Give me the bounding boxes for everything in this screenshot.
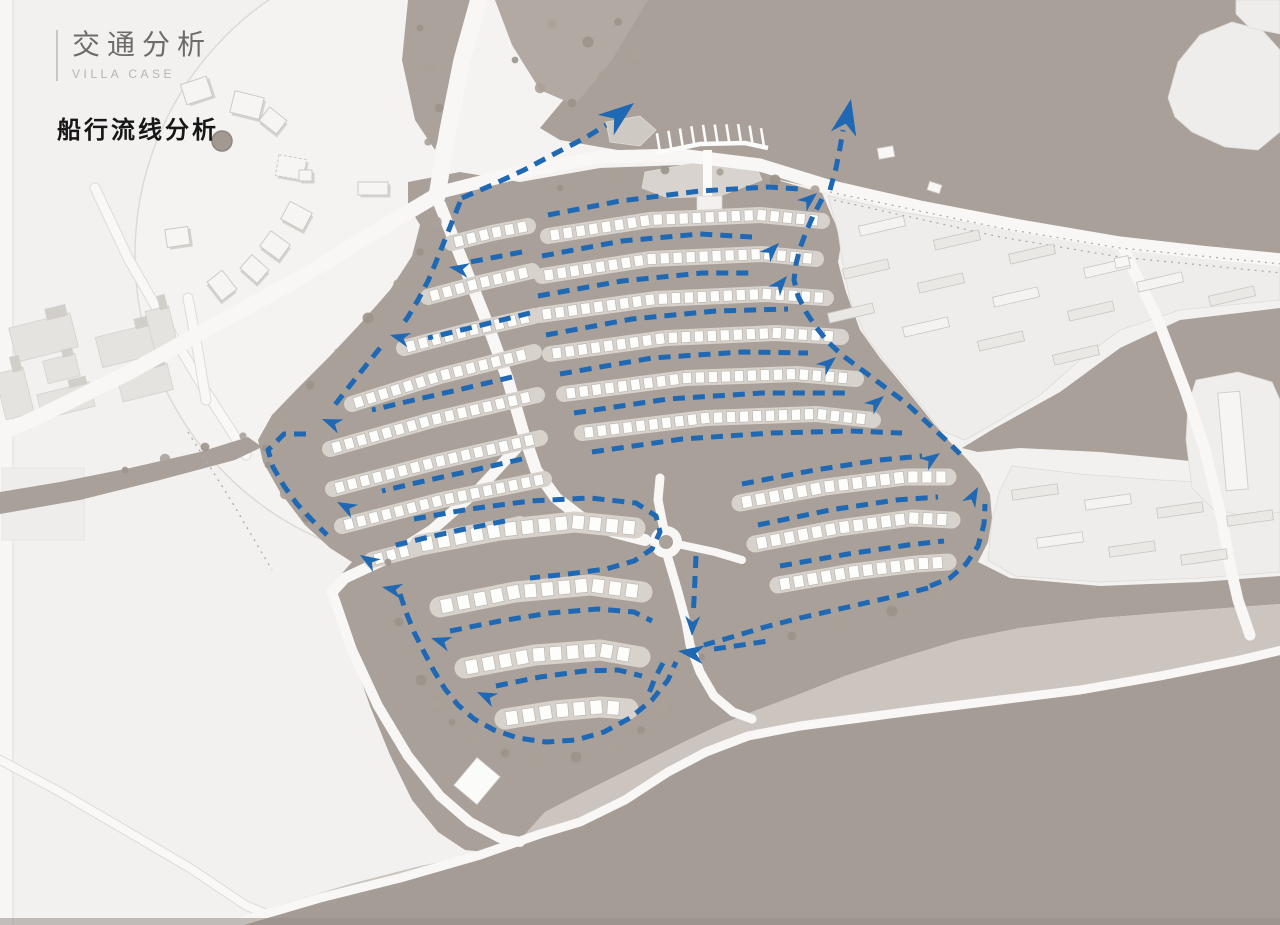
image-bottom-strip [0, 918, 1280, 925]
villa-unit [904, 558, 915, 571]
villa-unit [532, 647, 545, 662]
villa-unit [725, 250, 734, 261]
villa-unit [591, 578, 605, 593]
tree [334, 348, 341, 355]
tree [393, 279, 402, 288]
villa-unit [572, 515, 585, 530]
tree [637, 726, 645, 734]
villa-unit [731, 210, 740, 221]
villa-unit [566, 645, 579, 660]
villa-unit [473, 446, 484, 459]
villa-unit [482, 484, 493, 497]
villa-unit [625, 583, 639, 598]
title-divider-bar [56, 30, 58, 81]
villa-unit [584, 426, 594, 438]
villa-unit [590, 342, 600, 354]
villa-unit [734, 370, 743, 381]
tree [306, 381, 315, 390]
traffic-analysis-page: 交通分析 VILLA CASE 船行流线分析 [0, 0, 1280, 925]
villa-unit [627, 217, 638, 229]
tree [571, 752, 582, 763]
villa-unit [733, 329, 742, 340]
villa-unit [673, 252, 682, 263]
villa-unit [465, 659, 479, 675]
villa-unit [481, 656, 495, 672]
villa-unit [549, 646, 562, 661]
villa-unit [504, 223, 515, 236]
villa-unit [666, 213, 675, 224]
villa-unit [757, 209, 767, 221]
villa-unit [606, 299, 616, 311]
villa-unit [679, 213, 688, 224]
villa-unit [838, 372, 848, 384]
villa-unit [747, 370, 756, 381]
tree [535, 83, 545, 93]
villa-unit [694, 331, 703, 342]
villa-unit [736, 289, 745, 300]
villa-unit [785, 328, 795, 340]
villa-unit [838, 478, 849, 491]
tree [557, 185, 564, 192]
villa-unit [712, 250, 721, 261]
villa-unit [726, 411, 735, 422]
tree [122, 467, 129, 474]
tree [606, 742, 615, 751]
villa-unit [668, 332, 677, 343]
villa-unit [616, 338, 626, 350]
villa-unit [490, 588, 505, 604]
villa-unit [744, 210, 753, 221]
villa-unit [632, 296, 642, 308]
villa-unit [460, 449, 471, 462]
villa-unit [713, 412, 722, 423]
villa-unit [605, 518, 618, 533]
villa-unit [760, 369, 769, 380]
villa-unit [582, 263, 593, 275]
villa-unit [575, 225, 586, 237]
villa-unit [756, 536, 768, 550]
villa-unit [699, 251, 708, 262]
villa-unit [655, 333, 665, 345]
villa-unit [555, 516, 568, 531]
villa-unit [569, 265, 580, 277]
boat-route-connector-vertical [693, 556, 696, 616]
villa-unit [517, 221, 528, 234]
villa-unit [782, 212, 792, 224]
villa-unit [684, 292, 693, 303]
villa-unit [770, 210, 780, 222]
villa-unit [856, 413, 866, 425]
villa-unit [640, 215, 651, 227]
tree [699, 654, 706, 661]
villa-unit [848, 565, 859, 578]
villa-unit [457, 490, 468, 503]
villa-unit [520, 476, 531, 489]
villa-unit [777, 250, 787, 262]
tree [887, 606, 898, 617]
villa-unit [741, 495, 753, 509]
tree [598, 71, 605, 78]
villa-unit [456, 594, 471, 610]
villa-unit [544, 269, 555, 281]
tree [324, 536, 331, 543]
villa-unit [614, 219, 625, 231]
villa-unit [710, 291, 719, 302]
villa-unit [918, 557, 929, 570]
villa-unit [505, 270, 516, 283]
villa-unit [692, 212, 701, 223]
tree [239, 432, 246, 439]
tree [417, 25, 424, 32]
tree [426, 63, 436, 73]
villa-unit [810, 482, 822, 496]
villa-unit [447, 452, 458, 465]
villa-unit [590, 700, 603, 715]
villa-unit [798, 329, 808, 341]
villa-unit [563, 227, 574, 239]
villa-unit [604, 382, 614, 394]
villa-unit [814, 292, 824, 304]
villa-unit [799, 369, 809, 381]
villa-unit [786, 369, 795, 380]
villa-unit [909, 512, 920, 524]
villa-unit [658, 293, 667, 304]
villa-unit [580, 303, 590, 315]
villa-unit [648, 418, 658, 430]
villa-unit [695, 372, 704, 383]
villa-unit [721, 371, 730, 382]
tree [435, 104, 444, 113]
tree [605, 171, 615, 181]
tree [363, 313, 374, 324]
villa-unit [588, 223, 599, 235]
villa-unit [908, 471, 918, 483]
villa-unit [773, 369, 782, 380]
villa-unit [444, 492, 455, 505]
villa-unit [542, 308, 552, 320]
villa-unit [621, 257, 632, 269]
villa-unit [599, 643, 613, 659]
villa-unit [697, 291, 706, 302]
villa-unit [522, 707, 536, 723]
villa-unit [473, 591, 488, 607]
villa-unit [608, 259, 619, 271]
villa-unit [772, 327, 782, 339]
villa-unit [629, 336, 639, 348]
villa-unit [812, 370, 822, 382]
villa-unit [642, 335, 652, 347]
villa-unit [558, 580, 571, 595]
tree [265, 462, 272, 469]
tree [657, 702, 669, 714]
villa-unit [890, 560, 901, 573]
villa-unit [577, 343, 587, 355]
villa-unit [653, 214, 662, 225]
villa-unit [498, 440, 509, 453]
villa-unit [749, 289, 758, 300]
tree [449, 719, 456, 726]
villa-unit [645, 294, 655, 306]
villa-unit [866, 517, 878, 530]
villa-unit [566, 387, 576, 399]
tree [385, 559, 392, 566]
tree [568, 99, 577, 108]
tree [536, 755, 543, 762]
title-block: 交通分析 VILLA CASE [56, 30, 212, 81]
villa-unit [552, 347, 562, 359]
villa-unit [779, 577, 791, 591]
villa-unit [830, 410, 840, 422]
tree [770, 175, 781, 186]
villa-unit [595, 261, 606, 273]
tree [614, 18, 622, 26]
tree [395, 618, 404, 627]
tree [431, 699, 440, 708]
tree [838, 619, 845, 626]
villa-unit [616, 646, 630, 662]
villa-unit [720, 330, 729, 341]
villa-unit [795, 213, 805, 225]
villa-unit [853, 519, 865, 532]
villa-unit [817, 409, 827, 421]
villa-unit [593, 301, 603, 313]
villa-unit [852, 476, 863, 489]
villa-unit [768, 490, 780, 504]
villa-unit [634, 255, 645, 267]
tree [629, 49, 641, 61]
villa-unit [643, 377, 653, 389]
villa-unit [937, 513, 948, 525]
villa-unit [879, 473, 890, 486]
tree [424, 138, 431, 145]
villa-unit [820, 570, 832, 584]
villa-unit [485, 443, 496, 456]
villa-unit [601, 221, 612, 233]
villa-unit [583, 643, 596, 658]
villa-unit [746, 328, 755, 339]
tree [661, 166, 670, 175]
waterfront-house [877, 146, 895, 160]
villa-unit [700, 412, 710, 424]
page-subtitle: VILLA CASE [72, 67, 212, 81]
villa-unit [669, 374, 679, 386]
villa-unit [778, 410, 787, 421]
villa-unit [504, 521, 517, 536]
villa-unit [839, 520, 851, 533]
section-title: 船行流线分析 [57, 110, 219, 145]
villa-unit [521, 520, 534, 535]
villa-unit [619, 297, 629, 309]
villa-unit [550, 229, 561, 241]
villa-unit [515, 649, 529, 665]
villa-unit [751, 249, 760, 260]
villa-unit [541, 581, 554, 596]
villa-unit [533, 474, 544, 487]
villa-unit [762, 288, 772, 300]
villa-unit [597, 425, 607, 437]
villa-unit [824, 480, 835, 493]
villa-unit [524, 583, 537, 598]
villa-unit [804, 409, 813, 420]
villa-unit [506, 584, 521, 600]
villa-unit [608, 581, 622, 596]
villa-unit [876, 562, 887, 575]
villa-unit [797, 528, 809, 542]
villa-unit [511, 437, 522, 450]
villa-unit [707, 330, 716, 341]
villa-unit [723, 290, 732, 301]
tree [788, 632, 797, 641]
villa-unit [517, 267, 528, 280]
villa-unit [893, 471, 904, 484]
villa-unit [708, 371, 717, 382]
villa-unit [498, 653, 512, 669]
villa-unit [661, 417, 671, 429]
villa-unit [705, 212, 714, 223]
villa-unit [603, 340, 613, 352]
roundabout-center [659, 535, 673, 549]
villa-unit [495, 482, 506, 495]
tree [810, 185, 819, 194]
tree [160, 454, 170, 464]
tree [932, 592, 941, 601]
villa-unit [556, 703, 569, 718]
villa-unit [491, 226, 502, 239]
tree [278, 413, 288, 423]
villa-unit [782, 487, 794, 501]
villa-unit [538, 518, 551, 533]
tree [501, 749, 510, 758]
villa-unit [575, 578, 588, 593]
villa-unit [622, 520, 635, 535]
tree [430, 216, 442, 228]
villa-unit [865, 475, 876, 488]
tree [583, 37, 594, 48]
villa-unit [623, 421, 633, 433]
villa-unit [770, 533, 782, 547]
villa-unit [783, 531, 795, 545]
villa-unit [765, 410, 774, 421]
villa-unit [592, 384, 602, 396]
villa-unit [647, 253, 656, 264]
tree [512, 57, 519, 64]
villa-unit [555, 306, 565, 318]
tree [471, 736, 481, 746]
villa-unit [588, 516, 601, 531]
villa-unit [660, 253, 669, 264]
villa-unit [932, 556, 943, 569]
tree [547, 19, 556, 28]
villa-unit [479, 275, 490, 288]
page-edge-strip [0, 0, 13, 925]
villa-unit [579, 385, 589, 397]
villa-unit [759, 328, 768, 339]
villa-unit [492, 273, 503, 286]
villa-unit [505, 710, 519, 726]
villa-unit [807, 572, 819, 586]
villa-unit [718, 211, 727, 222]
plaza-building [358, 182, 388, 195]
villa-unit [435, 455, 446, 468]
villa-unit [922, 471, 932, 483]
villa-unit [802, 252, 812, 264]
villa-unit [674, 415, 684, 427]
villa-unit [880, 515, 892, 528]
road [658, 478, 664, 530]
villa-unit [791, 409, 800, 420]
villa-unit [752, 410, 761, 421]
villa-unit [630, 379, 640, 391]
villa-unit [656, 375, 666, 387]
tree [201, 443, 210, 452]
villa-unit [538, 705, 552, 721]
villa-unit [793, 575, 805, 589]
tree [416, 248, 424, 256]
villa-unit [796, 484, 808, 498]
villa-unit [923, 513, 934, 525]
villa-unit [681, 331, 690, 342]
villa-unit [671, 292, 680, 303]
villa-unit [755, 492, 767, 506]
villa-unit [739, 411, 748, 422]
villa-unit [607, 700, 620, 715]
plaza-building [299, 170, 312, 181]
villa-unit [825, 523, 837, 537]
page-title: 交通分析 [72, 30, 212, 61]
villa-unit [565, 345, 575, 357]
villa-unit [811, 525, 823, 539]
villa-unit [894, 513, 906, 526]
villa-unit [687, 414, 697, 426]
villa-unit [686, 252, 695, 263]
villa-unit [440, 598, 455, 614]
villa-unit [573, 701, 586, 716]
villa-unit [610, 423, 620, 435]
villa-unit [834, 567, 846, 581]
villa-unit [469, 487, 480, 500]
tree [405, 648, 412, 655]
villa-unit [682, 372, 691, 383]
villa-unit [523, 434, 534, 447]
villa-unit [843, 411, 853, 423]
villa-unit [738, 249, 747, 260]
villa-unit [635, 420, 645, 432]
villa-unit [557, 267, 568, 279]
tree [716, 168, 723, 175]
villa-unit [567, 304, 577, 316]
villa-unit [936, 471, 946, 483]
villa-unit [862, 563, 873, 576]
plaza-building [165, 226, 190, 247]
villa-unit [508, 479, 519, 492]
tree [416, 675, 427, 686]
villa-unit [617, 380, 627, 392]
